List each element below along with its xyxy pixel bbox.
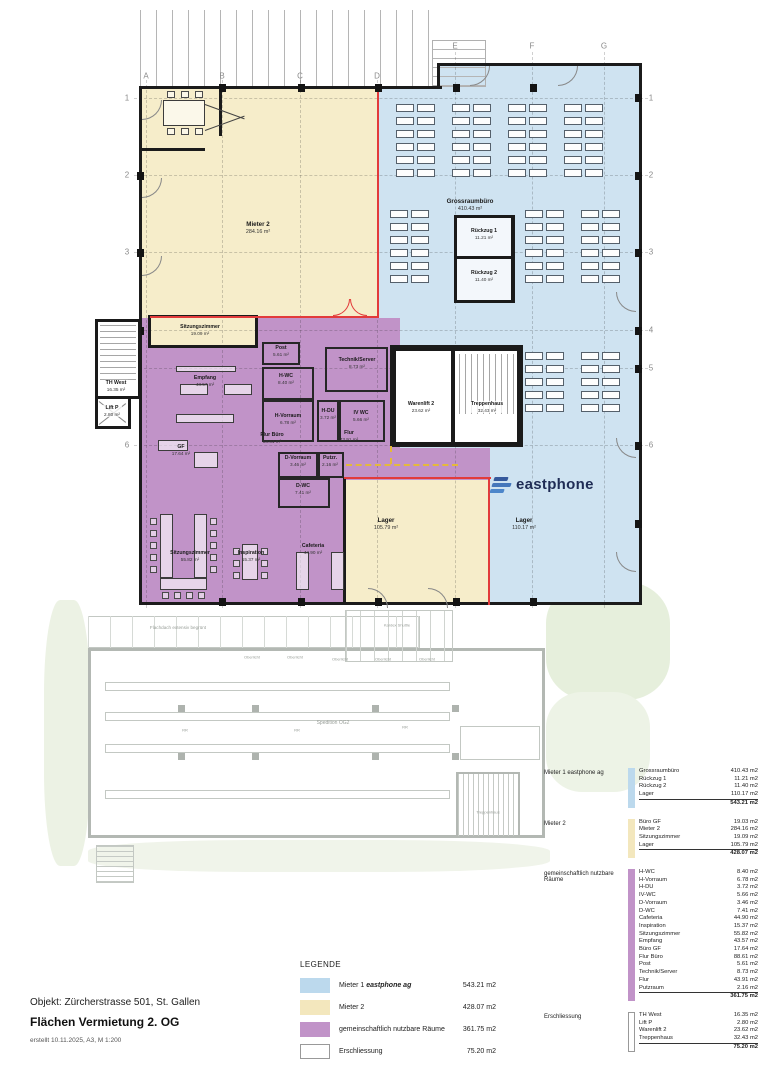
desk [581,378,599,386]
room-label-chip: Lift P2.80 m² [102,405,122,417]
room-area: 105.79 m² [374,525,398,532]
chair [210,542,217,549]
area-row: Mieter 2284.16 m2 [639,826,758,834]
room-area: 55.82 m² [170,556,210,562]
area-table-colorbar [628,1012,635,1052]
desk [411,262,429,270]
created-line: erstellt 10.11.2025, A3, M 1:200 [30,1037,200,1044]
grid-number-right: 2 [649,171,653,180]
area-row: Post5.61 m2 [639,961,758,969]
area-row-value: 16.35 m2 [734,1012,758,1020]
plan-title: Flächen Vermietung 2. OG [30,1015,200,1029]
desk [529,143,547,151]
area-row-name: Sitzungszimmer [639,931,680,939]
room-name: Mieter 2 [246,221,270,229]
area-row-name: Cafeteria [639,915,663,923]
area-row: D-Vorraum3.46 m2 [639,900,758,908]
area-table-group: gemeinschaftlich nutzbare RäumeH-WC8.40 … [544,869,758,1001]
grid-number-right: 1 [649,94,653,103]
desk [564,117,582,125]
room-warenlift [393,348,454,445]
grid-letter: B [219,72,224,81]
area-table: H-WC8.40 m2H-Vorraum6.78 m2H-DU3.72 m2IV… [628,869,758,1001]
area-row-value: 23.62 m2 [734,1027,758,1035]
logo-bar [491,483,511,487]
room-label-lager-mieter1: Lager110.17 m² [512,517,536,532]
area-table-group: Mieter 2Büro GF19.03 m2Mieter 2284.16 m2… [544,819,758,859]
grid-number-right: 5 [649,364,653,373]
room-area: 3.46 m² [285,461,311,467]
area-row-value: 105.79 m2 [731,842,758,850]
desk [525,249,543,257]
chair [186,592,193,599]
desk [525,404,543,412]
area-table-rows: Grossraumbüro410.43 m2Rückzug 111.21 m2R… [639,768,758,808]
area-table-title: Erschliessung [544,1012,622,1052]
wall [148,345,258,348]
column [219,598,226,606]
room-name: Warenlift 2 [408,401,434,408]
desk [508,143,526,151]
chair [195,91,203,98]
room-label-grossraumbuero: Grossraumbüro410.43 m² [447,198,494,213]
legend-label: Mieter 1 eastphone ag [339,982,463,989]
desk [546,262,564,270]
chair [150,518,157,525]
logo-bar [489,489,504,493]
chair [167,128,175,135]
column [219,84,226,92]
desk [529,117,547,125]
legend-swatch [300,978,330,993]
area-row-value: 2.16 m2 [737,985,758,993]
area-row-name: Rückzug 1 [639,776,666,784]
legend-area: 75.20 m2 [467,1048,496,1055]
desk [525,352,543,360]
desk [452,143,470,151]
desk [473,117,491,125]
room-area: 284.16 m² [246,229,270,236]
desk [417,130,435,138]
column [530,84,537,92]
desk [546,249,564,257]
room-area: 88.61 m² [260,438,283,444]
desk [602,404,620,412]
area-table: Grossraumbüro410.43 m2Rückzug 111.21 m2R… [628,768,758,808]
area-row-value: 8.73 m2 [737,969,758,977]
desk [452,130,470,138]
desk [581,352,599,360]
desk [390,262,408,270]
zone-fill [345,480,489,602]
room-label-flur-buero: Flur Büro88.61 m² [260,432,283,444]
desk [602,378,620,386]
area-row: Putzraum2.16 m2 [639,985,758,993]
column [635,442,642,450]
chair [181,91,189,98]
area-row-name: Technik/Server [639,969,677,977]
room-label-chip: Treppenhaus32.43 m² [469,401,505,413]
eastphone-logo: eastphone [492,476,594,493]
desk [581,404,599,412]
logo-bar [493,477,508,481]
area-row-value: 32.43 m2 [734,1035,758,1043]
area-row: Sitzungszimmer55.82 m2 [639,931,758,939]
grid-letter: F [530,42,535,51]
desk [452,117,470,125]
legend-item: Erschliessung75.20 m2 [300,1044,496,1059]
desk [390,210,408,218]
area-table-colorbar [628,869,635,1001]
desk [390,249,408,257]
area-row-name: Lager [639,791,654,799]
area-row: H-DU3.72 m2 [639,884,758,892]
area-table: Büro GF19.03 m2Mieter 2284.16 m2Sitzungs… [628,819,758,859]
desk [525,391,543,399]
room-label-sitzungszimmer-gross: Sitzungszimmer55.82 m² [170,550,210,562]
room-area: 23.62 m² [408,407,434,413]
desk [525,210,543,218]
area-row-name: Post [639,961,651,969]
area-row: H-Vorraum6.78 m2 [639,877,758,885]
rental-boundary [150,316,379,318]
area-row-value: 19.09 m2 [734,834,758,842]
area-row: Inspiration15.37 m2 [639,923,758,931]
room-name: D-WC [295,483,311,490]
room-label-lift-p: Lift P2.80 m² [102,405,122,417]
room-name: H-WC [278,373,294,380]
column [298,598,305,606]
area-row-value: 55.82 m2 [734,931,758,939]
room-area: 17.64 m² [172,450,191,456]
desk [390,223,408,231]
area-row-value: 284.16 m2 [731,826,758,834]
service-room [317,400,339,442]
legend-items: Mieter 1 eastphone ag543.21 m2Mieter 242… [300,978,496,1059]
area-row: Sitzungszimmer19.09 m2 [639,834,758,842]
room-name: IV WC [353,410,369,417]
desk [585,156,603,164]
room-area: 6.78 m² [275,419,301,425]
grid-line-h [134,98,648,99]
desk [585,169,603,177]
grid-line-v [300,80,301,608]
desk [564,104,582,112]
desk [411,275,429,283]
wall [148,315,151,348]
area-row: TH West16.35 m2 [639,1012,758,1020]
room-name: Sitzungszimmer [180,324,220,331]
desk [602,223,620,231]
room-area: 11.21 m² [471,234,497,240]
legend-brand: eastphone ag [366,982,411,989]
legend-item: Mieter 2428.07 m2 [300,1000,496,1015]
room-area: 43.57 m² [194,381,216,387]
desk [581,391,599,399]
desk [525,262,543,270]
room-label-rueckzug2: Rückzug 211.40 m² [471,270,497,282]
desk [396,143,414,151]
area-table-colorbar [628,768,635,808]
wall [139,602,642,605]
room-name: TH West [106,380,127,387]
room-label-rueckzug1: Rückzug 111.21 m² [471,228,497,240]
area-table-colorbar [628,819,635,859]
desk [452,104,470,112]
chair [210,566,217,573]
room-name: Lift P [104,405,120,412]
desk [602,249,620,257]
room-name: Putzr. [322,455,338,462]
desk [546,365,564,373]
room-label-h-vorraum: H-Vorraum6.78 m² [275,413,301,425]
room-label-post: Post5.61 m² [273,345,289,357]
desk [581,236,599,244]
area-row: H-WC8.40 m2 [639,869,758,877]
area-row-name: Lager [639,842,654,850]
area-row-name: Büro GF [639,946,661,954]
area-row-value: 3.72 m2 [737,884,758,892]
desk [602,365,620,373]
grid-number-right: 4 [649,326,653,335]
wall [437,63,640,66]
area-row-name: Warenlift 2 [639,1027,667,1035]
furniture [224,384,252,395]
area-row: Lager110.17 m2 [639,791,758,799]
column [298,84,305,92]
room-label-putzraum: Putzr.2.16 m² [322,455,338,467]
area-total-value: 361.75 m2 [730,993,758,1001]
area-row-name: Mieter 2 [639,826,660,834]
area-table-group: Mieter 1 eastphone agGrossraumbüro410.43… [544,768,758,808]
eastphone-icon [489,477,513,493]
grid-letter: A [143,72,148,81]
grid-number-right: 6 [649,441,653,450]
room-name: Rückzug 2 [471,270,497,277]
room-area: 3.72 m² [320,414,336,420]
room-label-h-wc: H-WC8.40 m² [278,373,294,385]
desk [546,223,564,231]
desk [529,130,547,138]
rental-boundary [488,477,490,605]
room-area: 19.09 m² [180,330,220,336]
desk [508,130,526,138]
rental-boundary [344,477,491,479]
area-table-title: Mieter 2 [544,819,622,859]
room-area: 43.91 m² [340,436,359,442]
area-row-value: 43.91 m2 [734,977,758,985]
service-room [325,347,388,392]
area-table-rows: Büro GF19.03 m2Mieter 2284.16 m2Sitzungs… [639,819,758,859]
desk [602,210,620,218]
room-label-th-west: TH West16.35 m² [104,380,129,392]
desk [508,104,526,112]
wall [141,148,205,151]
area-row-name: Flur [639,977,649,985]
area-row: Grossraumbüro410.43 m2 [639,768,758,776]
area-row: Rückzug 211.40 m2 [639,783,758,791]
stairs [100,324,136,380]
desk [602,236,620,244]
room-name: Lager [374,517,398,525]
room-label-warenlift-2: Warenlift 223.62 m² [406,401,436,413]
room-name: Post [273,345,289,352]
chair [174,592,181,599]
area-row-name: Rückzug 2 [639,783,666,791]
area-row-name: Flur Büro [639,954,663,962]
desk [581,249,599,257]
area-total-row: 361.75 m2 [639,992,758,1001]
area-total-row: 75.20 m2 [639,1043,758,1052]
room-area: 5.61 m² [273,351,289,357]
desk [508,117,526,125]
column [530,598,537,606]
desk [564,130,582,138]
desk [529,104,547,112]
desk [390,236,408,244]
room-area: 7.41 m² [295,489,311,495]
desk [417,143,435,151]
object-line: Objekt: Zürcherstrasse 501, St. Gallen [30,997,200,1008]
column [635,520,642,528]
area-row-value: 15.37 m2 [734,923,758,931]
chair [210,554,217,561]
area-total-row: 428.07 m2 [639,849,758,858]
desk [602,352,620,360]
room-area: 5.66 m² [353,416,369,422]
grid-number-right: 3 [649,248,653,257]
room-label-chip: Warenlift 223.62 m² [406,401,436,413]
grid-line-v [146,80,147,608]
area-total-value: 543.21 m2 [730,800,758,808]
desk [411,249,429,257]
area-total-value: 428.07 m2 [730,850,758,858]
column [635,365,642,373]
area-row-value: 17.64 m2 [734,946,758,954]
room-area: 44.90 m² [302,549,324,555]
legend-swatch [300,1000,330,1015]
desk [585,143,603,151]
desk [411,223,429,231]
area-row-value: 3.46 m2 [737,900,758,908]
wall [255,315,258,348]
area-row: Cafeteria44.90 m2 [639,915,758,923]
column [453,598,460,606]
legend-item: Mieter 1 eastphone ag543.21 m2 [300,978,496,993]
room-label-sitzungszimmer-klein: Sitzungszimmer19.09 m² [180,324,220,336]
area-row-name: Grossraumbüro [639,768,679,776]
room-name: D-Vorraum [285,455,311,462]
area-row: Warenlift 223.62 m2 [639,1027,758,1035]
area-row: Treppenhaus32.43 m2 [639,1035,758,1043]
room-label-gf: GF17.64 m² [172,444,191,456]
desk [525,378,543,386]
desk [585,130,603,138]
escape-route [346,464,458,466]
furniture [176,414,234,423]
room-label-d-wc: D-WC7.41 m² [295,483,311,495]
area-row-name: Empfang [639,938,662,946]
area-row: Büro GF19.03 m2 [639,819,758,827]
furniture [194,514,207,578]
desk [546,404,564,412]
area-row-value: 8.40 m2 [737,869,758,877]
room-label-treppenhaus: Treppenhaus32.43 m² [469,401,505,413]
desk [581,365,599,373]
room-area: 11.40 m² [471,276,497,282]
desk [473,169,491,177]
area-table-group: ErschliessungTH West16.35 m2Lift P2.80 m… [544,1012,758,1052]
desk [473,156,491,164]
desk [473,104,491,112]
desk [546,275,564,283]
room-label-empfang: Empfang43.57 m² [194,375,216,387]
chair [210,530,217,537]
desk [525,236,543,244]
desk [529,169,547,177]
area-row: D-WC7.41 m2 [639,908,758,916]
floor-plan-sheet: Flachdach extensiv begrüntSpedition OG2K… [0,0,764,1080]
room-area: 2.16 m² [322,461,338,467]
legend-label: Mieter 2 [339,1004,463,1011]
room-name: Treppenhaus [471,401,503,408]
desk [564,143,582,151]
area-row-name: Inspiration [639,923,666,931]
area-row-value: 5.61 m2 [737,961,758,969]
area-row-name: Treppenhaus [639,1035,673,1043]
furniture [160,578,207,590]
column [635,172,642,180]
legend-area: 543.21 m2 [463,982,496,989]
grid-letter: C [297,72,303,81]
grid-number-left: 1 [125,94,129,103]
desk [417,117,435,125]
desk [581,223,599,231]
desk [546,378,564,386]
desk [452,156,470,164]
desk [508,169,526,177]
title-block: Objekt: Zürcherstrasse 501, St. Gallen F… [30,997,200,1044]
chair [167,91,175,98]
room-area: 410.43 m² [447,206,494,213]
desk [452,169,470,177]
desk [585,104,603,112]
desk [396,156,414,164]
eastphone-logo-text: eastphone [516,476,594,493]
room-name: Technik/Server [339,357,376,364]
area-row-value: 44.90 m2 [734,915,758,923]
room-area: 16.35 m² [106,386,127,392]
room-area: 8.40 m² [278,379,294,385]
escape-route [390,446,392,464]
furniture [296,552,309,590]
grid-line-v [222,80,223,608]
chair [210,518,217,525]
desk [396,104,414,112]
area-row: Rückzug 111.21 m2 [639,776,758,784]
room-label-d-vorraum: D-Vorraum3.46 m² [285,455,311,467]
area-row: Flur43.91 m2 [639,977,758,985]
wall [437,63,440,89]
desk [525,223,543,231]
area-row-value: 11.40 m2 [734,783,758,791]
furniture [194,452,218,468]
chair [150,530,157,537]
column [635,94,642,102]
grid-number-left: 3 [125,248,129,257]
desk [602,391,620,399]
desk [525,275,543,283]
